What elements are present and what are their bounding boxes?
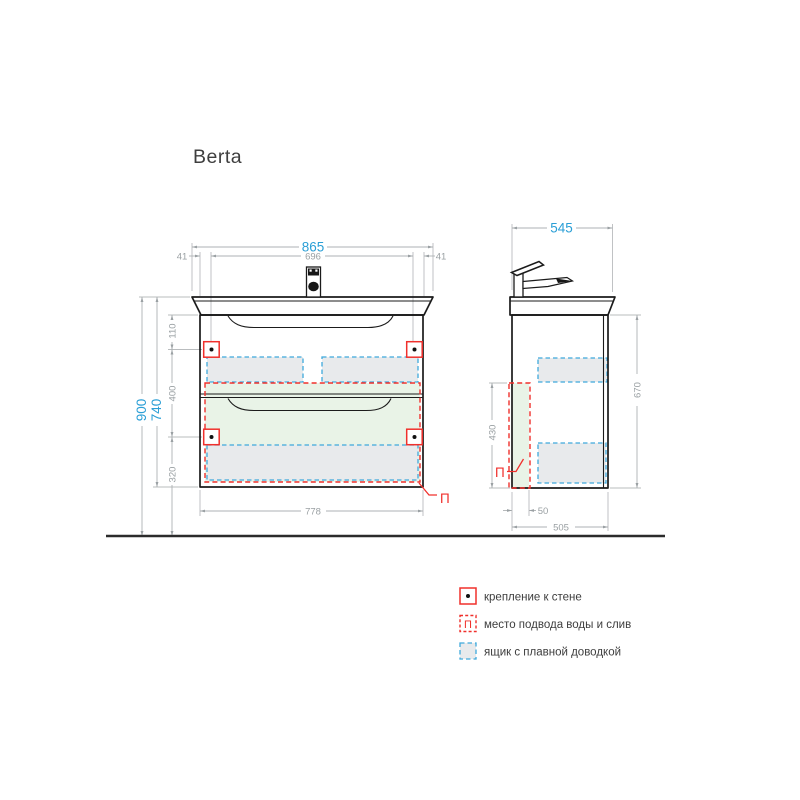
soft-close-drawer-icon xyxy=(460,643,476,659)
dim-cabinet-width: 778 xyxy=(200,507,423,518)
dim-heights: 900 740 110 400 320 xyxy=(134,297,179,536)
legend-label: место подвода воды и слив xyxy=(484,619,631,631)
dim-label-mount-spacing: 400 xyxy=(168,386,179,402)
mount-dot xyxy=(210,348,214,352)
dim-label-inner-width: 696 xyxy=(305,252,321,263)
legend-label: крепление к стене xyxy=(484,592,582,604)
drawer-box-side-bottom xyxy=(538,443,606,483)
plumbing-leader-front xyxy=(419,483,437,495)
dim-label-mount-height: 900 xyxy=(134,399,149,422)
basin-side xyxy=(510,297,615,315)
faucet-front xyxy=(307,267,321,297)
drawer-box-top-right xyxy=(322,357,418,382)
drawer-box-top-left xyxy=(207,357,303,382)
faucet-handle xyxy=(512,262,544,276)
faucet-body xyxy=(514,274,523,298)
legend: крепление к стене П место подвода воды и… xyxy=(460,588,631,659)
dim-offsets-row: 41 696 41 xyxy=(177,252,447,263)
legend-item-soft-close-drawer: ящик с плавной доводкой xyxy=(460,643,621,659)
legend-item-wall-mount: крепление к стене xyxy=(460,588,582,604)
dim-label-cabinet-width: 778 xyxy=(305,507,321,518)
mount-dot xyxy=(413,435,417,439)
drawer-box-side-top xyxy=(538,358,607,382)
dim-label-unit-height: 740 xyxy=(149,399,164,422)
faucet-detail xyxy=(310,270,312,272)
dim-total-depth: 545 xyxy=(512,221,613,236)
dim-label-total-depth: 545 xyxy=(550,221,573,236)
side-view: 545 670 430 50 505 xyxy=(488,221,644,534)
faucet-spout xyxy=(523,278,573,289)
dim-label-plumbing-height: 430 xyxy=(488,425,499,441)
dim-label-offset-right: 41 xyxy=(436,252,447,263)
technical-drawing: Berta 865 xyxy=(0,0,800,800)
wall-mount-dot xyxy=(466,594,470,598)
front-view: 865 41 696 41 900 740 110 400 xyxy=(134,240,450,537)
faucet-side xyxy=(512,262,573,298)
faucet-detail xyxy=(315,270,317,272)
mount-dot xyxy=(210,435,214,439)
dim-label-plumbing-depth: 50 xyxy=(538,506,549,517)
drawer-box-bottom xyxy=(207,445,418,480)
water-zone-fill-side xyxy=(512,383,529,488)
plumbing-mark-front: П xyxy=(440,491,450,506)
basin-front xyxy=(192,297,433,315)
legend-item-water-supply: П место подвода воды и слив xyxy=(460,616,631,632)
legend-label: ящик с плавной доводкой xyxy=(484,647,621,659)
page-title: Berta xyxy=(193,146,242,168)
dim-label-cabinet-depth: 505 xyxy=(553,523,569,534)
dim-label-top-to-mount: 110 xyxy=(168,323,179,338)
plumbing-mark-side: П xyxy=(495,465,505,480)
dim-cabinet-height: 670 xyxy=(633,315,644,488)
dim-label-offset-left: 41 xyxy=(177,252,188,263)
dim-bottom-depths: 50 505 xyxy=(503,506,608,534)
faucet-spout xyxy=(308,282,319,292)
dim-label-cabinet-height: 670 xyxy=(633,382,644,398)
dim-label-mount-to-floor: 320 xyxy=(168,467,179,483)
mount-dot xyxy=(413,348,417,352)
water-supply-symbol: П xyxy=(464,619,472,631)
drawer-handle-groove-top xyxy=(228,316,393,328)
